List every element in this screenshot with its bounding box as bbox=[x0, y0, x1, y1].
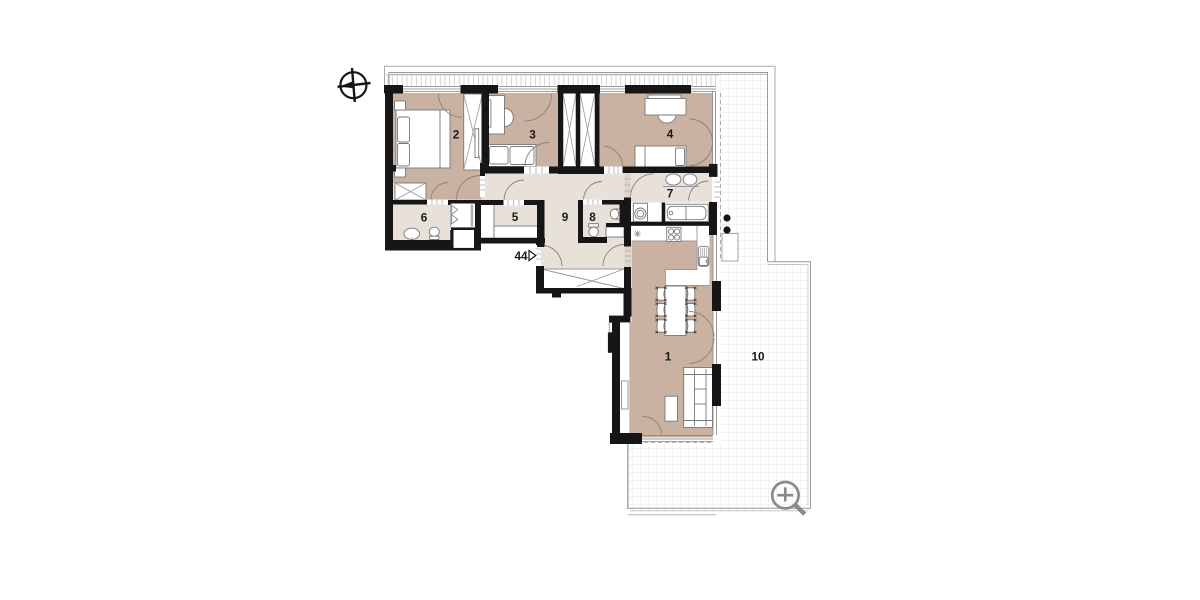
svg-text:3: 3 bbox=[529, 128, 536, 142]
svg-text:10: 10 bbox=[751, 350, 765, 364]
svg-text:2: 2 bbox=[453, 128, 460, 142]
svg-text:44: 44 bbox=[514, 249, 528, 263]
svg-text:7: 7 bbox=[667, 187, 674, 201]
svg-text:4: 4 bbox=[667, 127, 674, 141]
svg-text:9: 9 bbox=[562, 210, 569, 224]
svg-text:5: 5 bbox=[512, 210, 519, 224]
svg-text:1: 1 bbox=[665, 350, 672, 364]
svg-text:8: 8 bbox=[589, 210, 596, 224]
svg-text:6: 6 bbox=[421, 211, 428, 225]
